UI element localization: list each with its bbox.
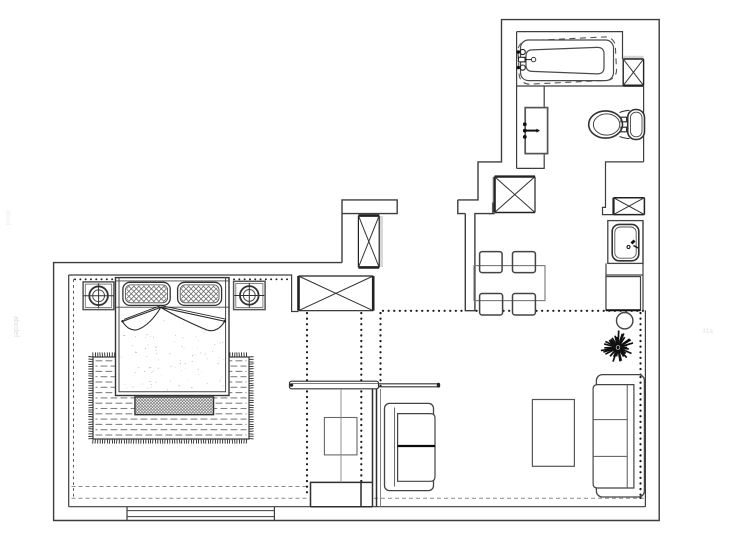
svg-text:abcdef: abcdef bbox=[12, 316, 19, 337]
svg-text:31a: 31a bbox=[702, 328, 713, 335]
svg-text:abcd: abcd bbox=[4, 210, 11, 225]
